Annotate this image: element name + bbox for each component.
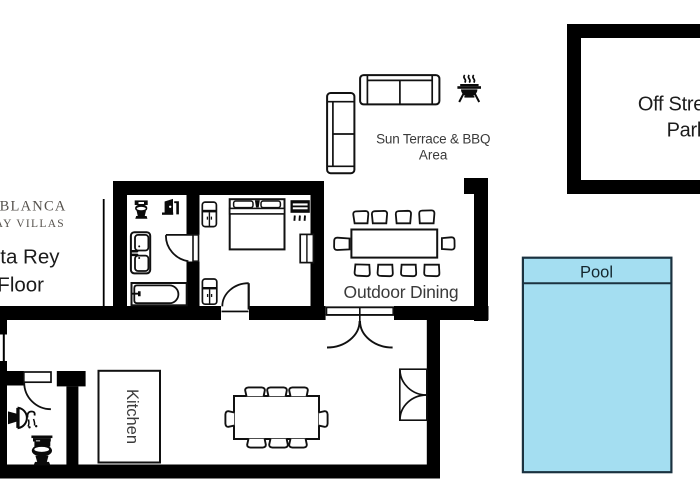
svg-text:Area: Area bbox=[419, 147, 448, 162]
svg-text:Sun Terrace & BBQ: Sun Terrace & BBQ bbox=[376, 131, 490, 146]
svg-text:Kitchen: Kitchen bbox=[123, 389, 141, 444]
svg-text:Parking: Parking bbox=[667, 120, 700, 142]
svg-text:Outdoor Dining: Outdoor Dining bbox=[344, 282, 459, 302]
svg-text:HOLIDAY VILLAS: HOLIDAY VILLAS bbox=[0, 218, 65, 230]
svg-text:Off Street: Off Street bbox=[638, 94, 700, 116]
svg-text:Pool: Pool bbox=[580, 263, 613, 281]
svg-text:Ground Floor: Ground Floor bbox=[0, 274, 44, 297]
svg-text:Casita Rey: Casita Rey bbox=[0, 245, 60, 268]
svg-text:CASABLANCA: CASABLANCA bbox=[0, 199, 67, 215]
